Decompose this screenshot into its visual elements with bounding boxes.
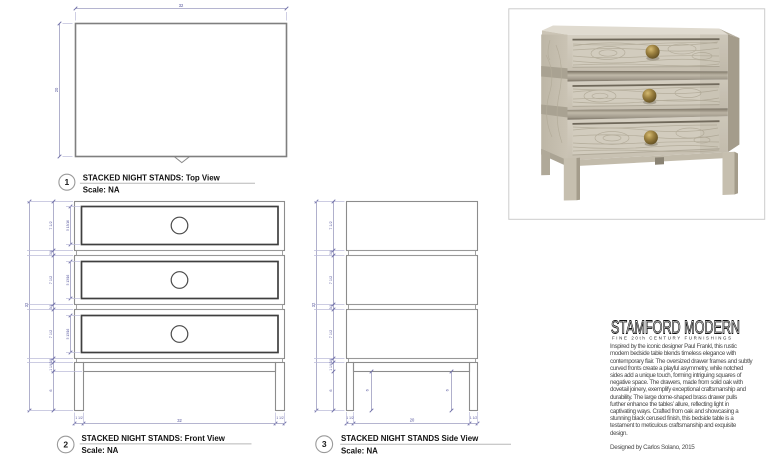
svg-text:FINE 20th CENTURY FURNISHINGS: FINE 20th CENTURY FURNISHINGS <box>612 336 733 341</box>
svg-text:STAMFORD MODERN: STAMFORD MODERN <box>611 317 740 338</box>
